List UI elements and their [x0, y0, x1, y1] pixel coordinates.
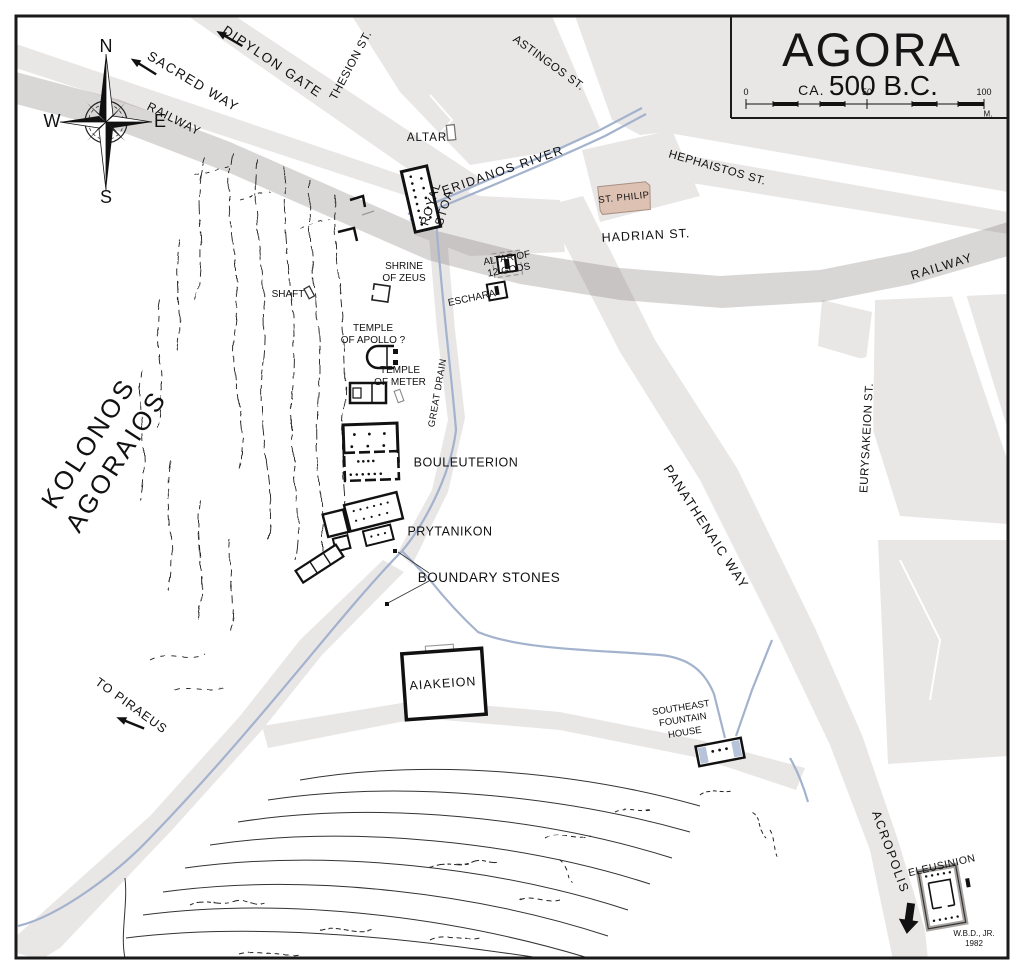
map-graphics: [0, 0, 1024, 977]
south-terrain: [123, 769, 700, 958]
agora-map: AGORA CA. 500 B.C. 0 50 100 M. N S W E S…: [0, 0, 1024, 977]
sacred-way-arrow: [129, 55, 159, 78]
scale-end: 100: [976, 87, 991, 97]
temple-of-meter-building: [350, 383, 404, 403]
scale-start: 0: [743, 87, 748, 97]
shrine-of-zeus-icon: [372, 284, 390, 302]
subtitle-date: 500 B.C.: [829, 70, 938, 101]
temple-of-apollo-building: [367, 346, 398, 368]
scale-unit: M.: [984, 110, 993, 119]
eleusinion-building: [918, 863, 976, 929]
bouleuterion-building: [343, 423, 399, 481]
aiakeion-building: [401, 642, 486, 719]
altar-icon: [446, 125, 456, 141]
subtitle-ca: CA.: [798, 82, 824, 98]
st-philip-building: [598, 181, 653, 214]
hill-contours: [140, 152, 347, 690]
map-subtitle: CA. 500 B.C.: [798, 70, 938, 102]
scale-mid: 50: [862, 87, 872, 97]
shaft-icon: [304, 286, 314, 299]
to-piraeus-arrow: [115, 714, 146, 733]
pipe-northeast: [736, 640, 772, 736]
eschara-icon: [487, 282, 508, 301]
